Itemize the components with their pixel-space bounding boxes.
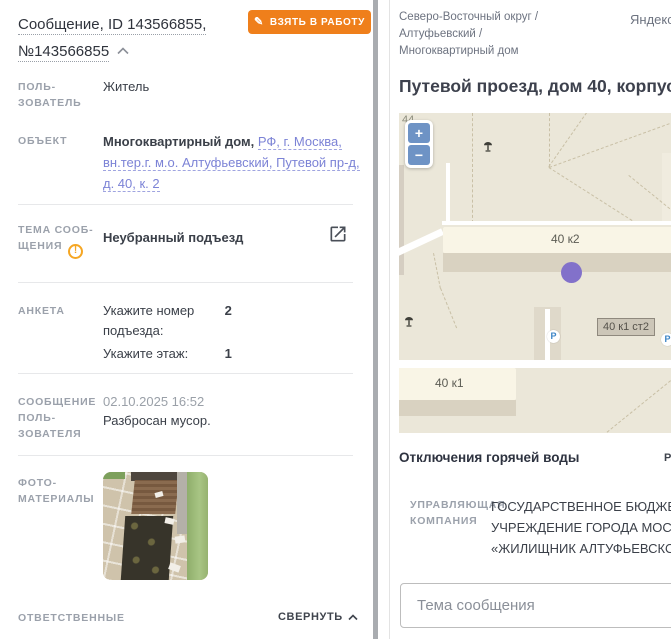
open-in-new-icon[interactable] <box>328 224 348 244</box>
divider <box>18 373 353 374</box>
topic-input[interactable] <box>400 583 671 628</box>
map-zoom-control: + − <box>405 120 433 168</box>
breadcrumb-district[interactable]: Северо-Восточный округ / <box>399 11 538 23</box>
object-field-value: Многоквартирный дом, РФ, г. Москва, вн.т… <box>103 131 361 194</box>
map-road <box>399 228 444 256</box>
message-title[interactable]: Сообщение, ID 143566855, №143566855 <box>18 12 248 65</box>
divider <box>18 282 353 283</box>
user-message-date: 02.10.2025 16:52 <box>103 392 204 412</box>
anketa-answer: 1 <box>225 344 232 364</box>
anketa-answer: 2 <box>225 301 232 321</box>
hot-water-section-title: Отключения горячей воды <box>399 450 579 465</box>
map-path <box>433 253 441 289</box>
map-building-40k1-label: 40 к1 <box>435 376 464 390</box>
tree-icon <box>403 316 415 328</box>
message-detail-panel: Сообщение, ID 143566855, №143566855 ✎ ВЗ… <box>0 0 374 639</box>
map-building-40k1st2-label: 40 к1 ст2 <box>597 318 655 336</box>
theme-field-label: ТЕМА СООБ-ЩЕНИЯ! <box>18 222 96 259</box>
zoom-out-button[interactable]: − <box>408 145 430 165</box>
parking-icon: P <box>547 330 560 343</box>
photo-rug <box>121 516 173 580</box>
divider <box>18 204 353 205</box>
user-message-field-label: СООБЩЕНИЕ ПОЛЬ-ЗОВАТЕЛЯ <box>18 394 96 442</box>
anketa-question: Укажите этаж: <box>103 344 221 364</box>
map-path <box>549 113 550 167</box>
user-field-value: Житель <box>103 77 149 97</box>
chevron-up-icon <box>348 614 358 621</box>
app-screen: Сообщение, ID 143566855, №143566855 ✎ ВЗ… <box>0 0 671 639</box>
anketa-question: Укажите номер подъезда: <box>103 301 221 341</box>
object-info-panel: Северо-Восточный округ / Алтуфьевский / … <box>390 0 671 639</box>
map-path <box>549 123 670 168</box>
parking-icon: P <box>661 333 671 346</box>
warning-icon: ! <box>68 244 83 259</box>
map-road <box>399 360 671 368</box>
breadcrumb-area[interactable]: Алтуфьевский / <box>399 28 482 40</box>
theme-field-value: Неубранный подъезд <box>103 228 243 248</box>
photo-litter <box>175 535 186 543</box>
message-title-line1: Сообщение, ID 143566855, <box>18 16 206 35</box>
responsible-section-label: ОТВЕТСТВЕННЫЕ <box>18 612 125 624</box>
breadcrumb-object-type[interactable]: Многоквартирный дом <box>399 45 519 57</box>
panel-scrollbar[interactable] <box>373 0 378 639</box>
anketa-row: Укажите номер подъезда: 2 <box>103 301 232 341</box>
user-field-label: ПОЛЬ-ЗОВАТЕЛЬ <box>18 79 96 111</box>
map-area <box>662 153 671 223</box>
map-building-40k2-side <box>443 253 671 272</box>
user-message-text: Разбросан мусор. <box>103 411 211 431</box>
breadcrumb[interactable]: Северо-Восточный округ / Алтуфьевский / … <box>399 9 538 60</box>
tree-icon <box>482 141 494 153</box>
photo-field-label: ФОТО-МАТЕРИАЛЫ <box>18 475 96 507</box>
address-title: Путевой проезд, дом 40, корпус 2 <box>399 76 671 97</box>
map-building-edge <box>399 165 404 275</box>
anketa-row: Укажите этаж: 1 <box>103 344 232 364</box>
management-company-label: УПРАВЛЯЮЩАЯ КОМПАНИЯ <box>410 497 496 529</box>
photo-wall-corner <box>103 472 125 479</box>
message-title-line2: №143566855 <box>18 43 109 62</box>
collapse-responsible-link[interactable]: СВЕРНУТЬ <box>278 611 358 623</box>
photo-doorframe <box>177 472 187 534</box>
object-field-label: ОБЪЕКТ <box>18 133 96 149</box>
collapse-label: СВЕРНУТЬ <box>278 611 343 623</box>
map-path <box>472 113 473 223</box>
management-company-line: УЧРЕЖДЕНИЕ ГОРОДА МОСКВЫ <box>491 520 671 535</box>
map-path <box>607 380 671 432</box>
map-road <box>442 221 671 225</box>
map-path <box>440 288 457 328</box>
selected-location-marker[interactable] <box>561 262 582 283</box>
management-company-value: ГОСУДАРСТВЕННОЕ БЮДЖЕТНОЕ УЧРЕЖДЕНИЕ ГОР… <box>491 496 671 559</box>
map-building-40k1-side <box>399 400 516 416</box>
take-to-work-label: ВЗЯТЬ В РАБОТУ <box>270 17 365 28</box>
management-company-line: ГОСУДАРСТВЕННОЕ БЮДЖЕТНОЕ <box>491 499 671 514</box>
pencil-icon: ✎ <box>254 17 264 28</box>
anketa-field-label: АНКЕТА <box>18 303 96 319</box>
management-company-line: «ЖИЛИЩНИК АЛТУФЬЕВСКОГО РА <box>491 541 671 556</box>
photo-wall <box>187 472 208 580</box>
map-road <box>446 163 450 225</box>
zoom-in-button[interactable]: + <box>408 123 430 143</box>
anketa-rows: Укажите номер подъезда: 2 Укажите этаж: … <box>103 301 232 364</box>
object-type: Многоквартирный дом, <box>103 134 254 149</box>
collapse-message-icon[interactable] <box>117 38 129 64</box>
yandex-map[interactable]: 40 к2 40 к1 40 к1 ст2 P P 44 + − <box>399 113 671 433</box>
photo-thumbnail[interactable] <box>103 472 208 580</box>
divider <box>18 455 353 456</box>
take-to-work-button[interactable]: ✎ ВЗЯТЬ В РАБОТУ <box>248 10 371 34</box>
expand-link-partial[interactable]: Р <box>664 452 671 464</box>
yandex-logo[interactable]: Яндекс <box>630 12 671 27</box>
map-building-40k2-label: 40 к2 <box>551 232 580 246</box>
map-path <box>548 167 636 224</box>
